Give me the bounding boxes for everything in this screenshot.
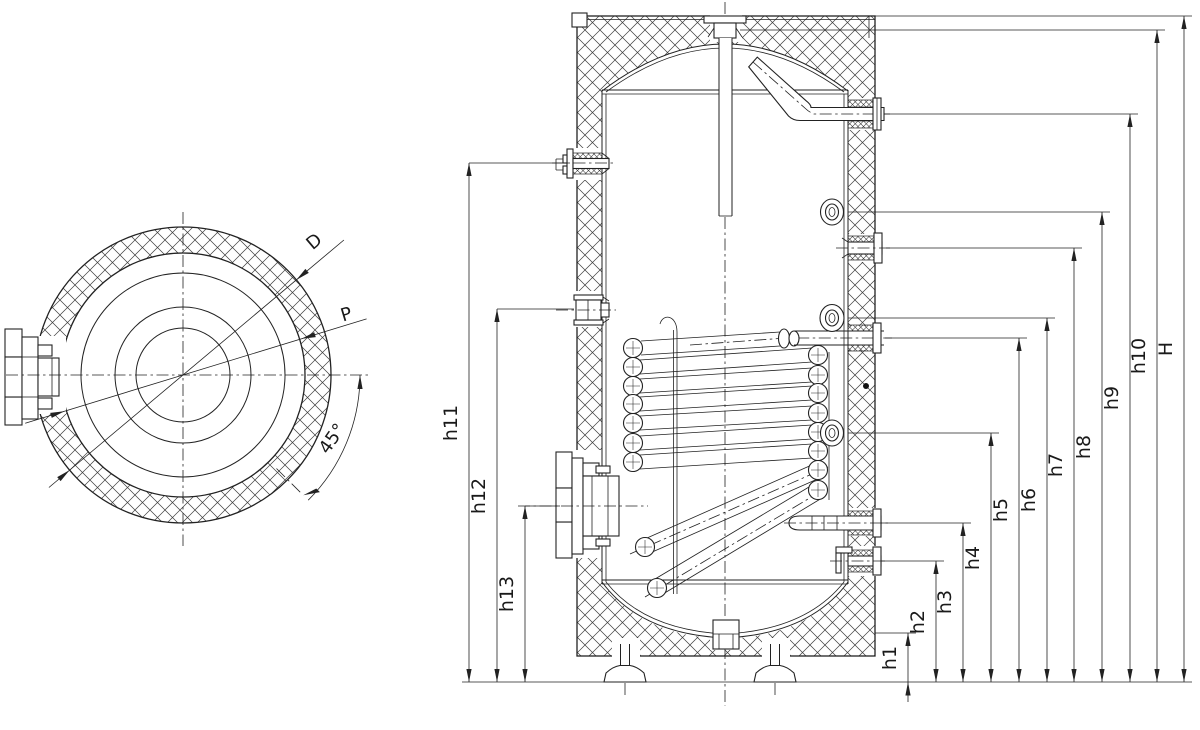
flange-gasket-top bbox=[5, 329, 22, 357]
dimension-h1-label: h1 bbox=[879, 646, 901, 670]
dimension-h4-label: h4 bbox=[962, 546, 984, 570]
dimension-H-label: H bbox=[1155, 342, 1177, 356]
technical-drawing-page: D P 45° bbox=[0, 0, 1200, 730]
flange-gasket-bottom bbox=[5, 397, 22, 425]
dimension-h1: h1 bbox=[875, 633, 916, 702]
port-boss-upper bbox=[821, 199, 844, 225]
port-boss-lower bbox=[821, 420, 844, 446]
dimension-h9: h9 bbox=[884, 114, 1138, 682]
top-plug-and-dip-tube bbox=[704, 16, 746, 216]
port-boss-middle bbox=[820, 305, 844, 332]
drain-plug bbox=[713, 620, 739, 649]
flange-plate bbox=[22, 337, 38, 419]
casing-corner-step bbox=[572, 13, 587, 27]
bracket bbox=[836, 547, 852, 553]
diameter-label: D bbox=[302, 229, 326, 254]
dimension-h10-label: h10 bbox=[1128, 338, 1150, 374]
port-label: P bbox=[338, 303, 355, 326]
dimension-h13-label: h13 bbox=[496, 576, 518, 612]
coil-turn-tubes bbox=[640, 348, 812, 469]
tank-drawing: D P 45° bbox=[0, 0, 1200, 730]
dimension-h11-label: h11 bbox=[440, 405, 462, 441]
dimension-h5-label: h5 bbox=[990, 498, 1012, 522]
front-section-view bbox=[462, 2, 1192, 706]
dimension-h8: h8 bbox=[848, 212, 1110, 682]
coupling-h3-return bbox=[784, 509, 890, 537]
coupling-collar bbox=[848, 121, 875, 128]
fitting-h12 bbox=[556, 295, 616, 325]
dimension-h9-label: h9 bbox=[1101, 386, 1123, 410]
dimension-h3-label: h3 bbox=[934, 590, 956, 614]
dimension-h12-label: h12 bbox=[468, 478, 490, 514]
top-plug-cap bbox=[704, 16, 746, 23]
flange-neck bbox=[38, 358, 59, 396]
coupling-collar bbox=[848, 100, 875, 107]
dimension-h2-label: h2 bbox=[907, 610, 929, 634]
coupling-h2 bbox=[830, 547, 888, 575]
flange-hub bbox=[5, 357, 22, 397]
top-view: D P 45° bbox=[5, 212, 370, 546]
dimension-h13: h13 bbox=[496, 506, 560, 682]
flange-bolt-top bbox=[38, 345, 52, 356]
coil-inlet-flange bbox=[873, 323, 881, 353]
sensor-point bbox=[863, 383, 869, 389]
flange-bolt-bottom bbox=[38, 398, 52, 409]
dimension-h7-label: h7 bbox=[1045, 453, 1067, 477]
dimension-h6-label: h6 bbox=[1018, 488, 1040, 512]
dimension-h6: h6 bbox=[848, 318, 1055, 682]
dimension-h8-label: h8 bbox=[1073, 435, 1095, 459]
top-plug-body bbox=[714, 23, 736, 38]
